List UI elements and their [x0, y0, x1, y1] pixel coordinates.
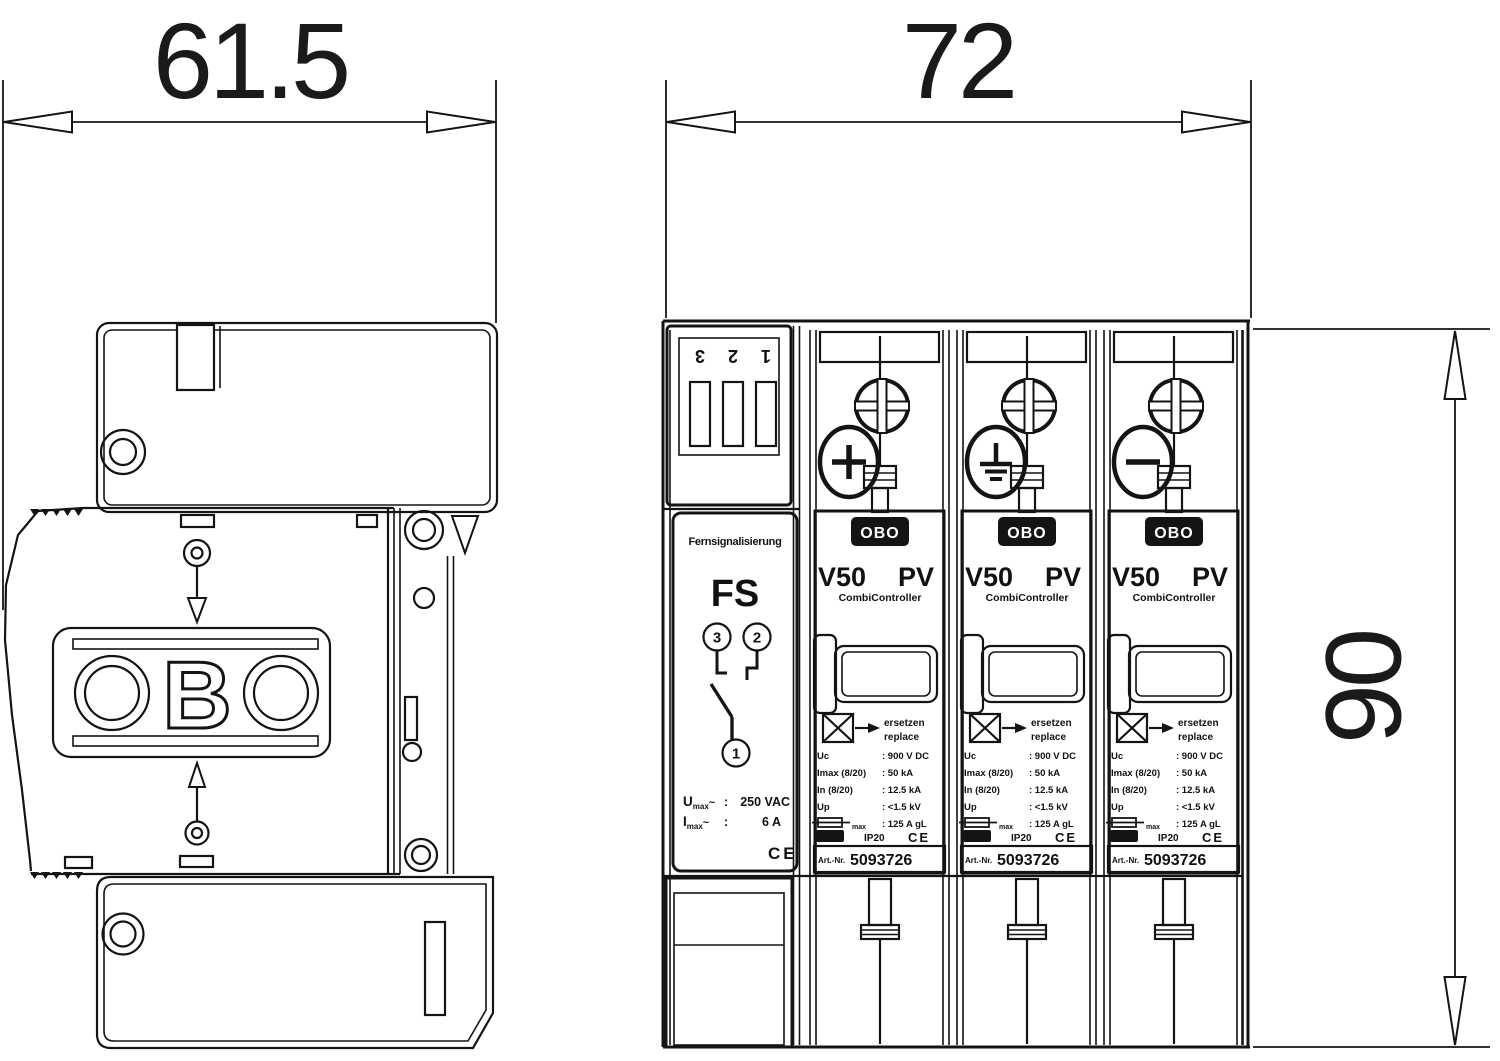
- svg-text:max: max: [852, 824, 866, 831]
- side-top-housing: [97, 323, 497, 512]
- svg-text:IP20: IP20: [864, 833, 885, 844]
- u-max-value: 250 VAC: [740, 795, 790, 809]
- dim-value-side-width: 61.5: [153, 0, 347, 121]
- svg-text:: <1.5 kV: : <1.5 kV: [1176, 802, 1215, 813]
- mounting-tab: [177, 325, 214, 390]
- svg-text:: 900 V DC: : 900 V DC: [882, 751, 929, 762]
- terminal-slot: [690, 382, 710, 446]
- svg-text:In (8/20): In (8/20): [964, 785, 1000, 796]
- svg-text:5093726: 5093726: [850, 852, 912, 869]
- ce-mark: CE: [768, 844, 798, 863]
- plus-terminal-icon: [820, 427, 878, 497]
- approval-mark: [816, 830, 844, 842]
- svg-text:Umax~: Umax~: [683, 794, 716, 811]
- terminal-number: 2: [728, 346, 738, 366]
- svg-text:: <1.5 kV: : <1.5 kV: [1029, 802, 1068, 813]
- svg-text:OBO: OBO: [860, 525, 899, 542]
- ce-mark: CE: [908, 830, 930, 845]
- fs-abbr: FS: [711, 573, 760, 615]
- arrow-up-icon: [189, 763, 205, 787]
- contact-number: 3: [713, 630, 721, 647]
- svg-text:: 50 kA: : 50 kA: [1029, 768, 1060, 779]
- svg-text:IP20: IP20: [1011, 833, 1032, 844]
- replace-arrow-icon: [1015, 723, 1027, 733]
- approval-row: IP20 CE: [1110, 830, 1224, 845]
- minus-terminal-icon: [1114, 427, 1172, 497]
- fuse-symbol-icon: [812, 818, 850, 827]
- svg-text:Uc: Uc: [964, 751, 976, 762]
- svg-text:: 12.5 kA: : 12.5 kA: [1176, 785, 1215, 796]
- mounting-hole-icon: [103, 914, 144, 955]
- v50-module-earth: OBO V50PV CombiController ersetzen repla…: [957, 330, 1096, 1045]
- svg-text:Uc: Uc: [817, 751, 829, 762]
- replace-indicator: ersetzen replace: [970, 714, 1072, 743]
- svg-text:: 50 kA: : 50 kA: [882, 768, 913, 779]
- fs-terminal-block: 3 2 1: [667, 326, 791, 505]
- v50-module-plus: OBO V50PV CombiController ersetzen repla…: [810, 330, 949, 1045]
- bottom-clamp: [1155, 879, 1193, 1044]
- obo-logo: OBO: [1145, 517, 1203, 546]
- svg-text:: <1.5 kV: : <1.5 kV: [882, 802, 921, 813]
- plug-handle: [961, 635, 1084, 713]
- svg-text:Imax (8/20): Imax (8/20): [1111, 768, 1160, 779]
- rail-slot: [425, 922, 445, 1015]
- approval-row: IP20 CE: [816, 830, 930, 845]
- dimension-72: 72: [666, 0, 1251, 318]
- approval-row: IP20 CE: [963, 830, 1077, 845]
- article-number-box: Art.-Nr. 5093726: [1108, 846, 1239, 872]
- contact-number: 2: [753, 630, 761, 647]
- svg-text::: :: [724, 815, 728, 829]
- svg-text:replace: replace: [1031, 732, 1066, 743]
- svg-text:ersetzen: ersetzen: [884, 718, 925, 729]
- svg-text:Up: Up: [817, 802, 830, 813]
- module-title: V50PV: [965, 562, 1081, 592]
- svg-text:IP20: IP20: [1158, 833, 1179, 844]
- obo-logo: OBO: [851, 517, 909, 546]
- module-subtitle: CombiController: [986, 592, 1069, 604]
- svg-text:Up: Up: [1111, 802, 1124, 813]
- logo-letter-b: B: [162, 642, 231, 749]
- module-subtitle: CombiController: [839, 592, 922, 604]
- svg-text:Up: Up: [964, 802, 977, 813]
- svg-text:Imax~: Imax~: [683, 814, 710, 831]
- din-rail-profile: [403, 511, 478, 874]
- fs-ratings: Umax~ : 250 VAC Imax~ : 6 A: [683, 794, 790, 831]
- replace-indicator: ersetzen replace: [1117, 714, 1219, 743]
- svg-text:max: max: [1146, 824, 1160, 831]
- i-max-value: 6 A: [762, 815, 781, 829]
- phillips-screw-icon: [1149, 379, 1203, 433]
- front-view: 3 2 1 Fernsignalisierung FS 3 2 1: [663, 321, 1250, 1047]
- svg-text:ersetzen: ersetzen: [1178, 718, 1219, 729]
- svg-text:: 12.5 kA: : 12.5 kA: [1029, 785, 1068, 796]
- article-number-box: Art.-Nr. 5093726: [961, 846, 1092, 872]
- u-symbol: U: [683, 794, 693, 809]
- replace-indicator: ersetzen replace: [823, 714, 925, 743]
- earth-terminal-icon: [967, 427, 1025, 497]
- fs-title: Fernsignalisierung: [688, 536, 781, 548]
- fuse-symbol-icon: [1106, 818, 1144, 827]
- plug-handle: [814, 635, 937, 713]
- obo-logo: OBO: [998, 517, 1056, 546]
- svg-text:: 12.5 kA: : 12.5 kA: [882, 785, 921, 796]
- fuse-symbol-icon: [959, 818, 997, 827]
- svg-text:5093726: 5093726: [1144, 852, 1206, 869]
- ce-mark: CE: [1055, 830, 1077, 845]
- spec-table: Uc : 900 V DC Imax (8/20) : 50 kA In (8/…: [812, 751, 929, 831]
- svg-text:replace: replace: [884, 732, 919, 743]
- obo-logo-side: B: [53, 628, 330, 757]
- phillips-screw-icon: [1002, 379, 1056, 433]
- fs-module: 3 2 1 Fernsignalisierung FS 3 2 1: [664, 326, 800, 1047]
- terminal-number: 1: [761, 346, 771, 366]
- terminal-slot: [756, 382, 776, 446]
- side-module-body: [5, 508, 83, 871]
- spec-table: Uc : 900 V DC Imax (8/20) : 50 kA In (8/…: [1106, 751, 1223, 831]
- side-view: B: [5, 323, 497, 1048]
- svg-text:Uc: Uc: [1111, 751, 1123, 762]
- technical-drawing: 61.5 72 90: [0, 0, 1500, 1061]
- svg-text:: 125 A gL: : 125 A gL: [1029, 819, 1074, 830]
- arrow-down-icon: [188, 598, 206, 622]
- top-clamp: [1011, 466, 1043, 512]
- replace-arrow-icon: [1162, 723, 1174, 733]
- svg-text:Imax (8/20): Imax (8/20): [817, 768, 866, 779]
- article-number-box: Art.-Nr. 5093726: [814, 846, 945, 872]
- plug-handle: [1108, 635, 1231, 713]
- svg-text:OBO: OBO: [1007, 525, 1046, 542]
- dim-arrow-left-icon: [667, 112, 735, 133]
- dim-value-front-height: 90: [1303, 632, 1424, 744]
- bottom-clamp: [861, 879, 899, 1044]
- svg-text:In (8/20): In (8/20): [1111, 785, 1147, 796]
- svg-text:OBO: OBO: [1154, 525, 1193, 542]
- fs-contact-schematic: 3 2 1: [704, 624, 771, 767]
- svg-text:Art.-Nr.: Art.-Nr.: [1112, 856, 1139, 865]
- svg-text:: 125 A gL: : 125 A gL: [1176, 819, 1221, 830]
- module-title: V50PV: [818, 562, 934, 592]
- contact-number: 1: [732, 746, 740, 763]
- svg-text:In (8/20): In (8/20): [817, 785, 853, 796]
- ce-mark: CE: [1202, 830, 1224, 845]
- serration-bottom: [30, 872, 83, 879]
- svg-text:Imax (8/20): Imax (8/20): [964, 768, 1013, 779]
- dim-value-front-width: 72: [902, 0, 1014, 121]
- din-rail-clip: [452, 516, 478, 553]
- svg-text::: :: [724, 795, 728, 809]
- svg-text:Art.-Nr.: Art.-Nr.: [818, 856, 845, 865]
- phillips-screw-icon: [855, 379, 909, 433]
- svg-text:max: max: [999, 824, 1013, 831]
- svg-text:ersetzen: ersetzen: [1031, 718, 1072, 729]
- svg-text:replace: replace: [1178, 732, 1213, 743]
- fs-label-panel: Fernsignalisierung FS 3 2 1: [673, 513, 798, 871]
- dim-arrow-right-icon: [1182, 112, 1250, 133]
- terminal-number: 3: [695, 346, 705, 366]
- top-clamp: [1158, 466, 1190, 512]
- dim-arrow-up-icon: [1445, 331, 1466, 399]
- svg-text:5093726: 5093726: [997, 852, 1059, 869]
- svg-text:: 50 kA: : 50 kA: [1176, 768, 1207, 779]
- fs-bottom-housing: [666, 878, 792, 1047]
- module-subtitle: CombiController: [1133, 592, 1216, 604]
- terminal-slot: [723, 382, 743, 446]
- module-title: V50PV: [1112, 562, 1228, 592]
- svg-text:: 125 A gL: : 125 A gL: [882, 819, 927, 830]
- svg-text:: 900 V DC: : 900 V DC: [1029, 751, 1076, 762]
- replace-arrow-icon: [868, 723, 880, 733]
- dim-arrow-right-icon: [427, 112, 495, 133]
- approval-mark: [1110, 830, 1138, 842]
- svg-text:: 900 V DC: : 900 V DC: [1176, 751, 1223, 762]
- mounting-hole-icon: [101, 430, 145, 474]
- approval-mark: [963, 830, 991, 842]
- bottom-clamp: [1008, 879, 1046, 1044]
- dim-arrow-left-icon: [4, 112, 72, 133]
- v50-module-minus: OBO V50PV CombiController ersetzen repla…: [1104, 330, 1243, 1045]
- svg-text:Art.-Nr.: Art.-Nr.: [965, 856, 992, 865]
- dimension-90: 90: [1253, 329, 1490, 1047]
- top-clamp: [864, 466, 896, 512]
- dim-arrow-down-icon: [1445, 977, 1466, 1045]
- spec-table: Uc : 900 V DC Imax (8/20) : 50 kA In (8/…: [959, 751, 1076, 831]
- side-bottom-housing: [97, 877, 493, 1048]
